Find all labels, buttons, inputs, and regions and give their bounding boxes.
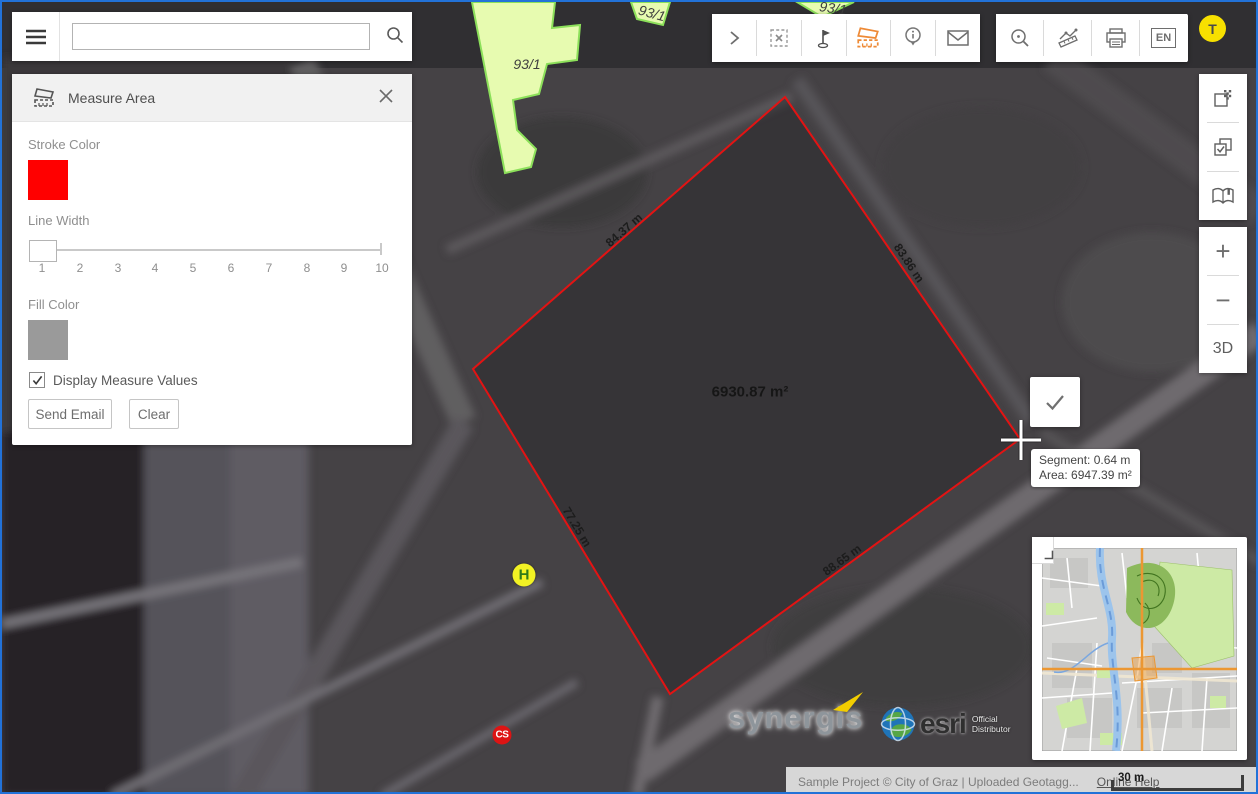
marker-h-label: H: [519, 567, 530, 584]
transparency-button[interactable]: [1199, 74, 1247, 122]
search-input[interactable]: [72, 23, 370, 50]
slider-endcap: [380, 243, 382, 255]
display-measure-values-checkbox[interactable]: Display Measure Values: [29, 372, 198, 388]
zoom-out-button[interactable]: −: [1199, 276, 1247, 324]
search-icon: [385, 25, 405, 45]
area-value-label: 6930.87 m²: [712, 384, 789, 401]
clear-selection-button[interactable]: [757, 14, 801, 62]
slider-tick: 9: [341, 261, 348, 275]
checkbox-check-icon: [32, 375, 43, 386]
scale-bar-line: [1111, 788, 1244, 791]
fill-color-label: Fill Color: [28, 297, 79, 312]
tooltip-segment-value: Segment: 0.64 m: [1039, 453, 1132, 468]
slider-tick: 8: [304, 261, 311, 275]
attribution-text: Sample Project © City of Graz | Uploaded…: [798, 775, 1079, 789]
divider: [59, 12, 60, 61]
flag-marker-button[interactable]: [802, 14, 846, 62]
identify-info-button[interactable]: [891, 14, 935, 62]
layer-selection-button[interactable]: [1199, 123, 1247, 171]
language-label: EN: [1151, 28, 1176, 48]
slider-tick: 3: [115, 261, 122, 275]
close-icon: [378, 88, 394, 104]
envelope-icon: [946, 28, 970, 48]
checkbox-label: Display Measure Values: [53, 373, 198, 388]
checked-squares-icon: [1211, 135, 1235, 159]
legend-button[interactable]: [1199, 172, 1247, 220]
search-button[interactable]: [378, 12, 412, 61]
checkered-squares-icon: [1211, 86, 1235, 110]
measure-area-panel: Measure Area Stroke Color Line Width 1 2…: [12, 74, 412, 445]
status-bar: Sample Project © City of Graz | Uploaded…: [786, 767, 1258, 794]
confirm-measurement-button[interactable]: [1030, 377, 1080, 427]
dashed-box-x-icon: [768, 27, 790, 49]
menu-button[interactable]: [12, 12, 59, 61]
measure-line-button[interactable]: [1044, 14, 1091, 62]
measure-area-icon: [32, 87, 56, 109]
print-button[interactable]: [1092, 14, 1139, 62]
slider-tick: 7: [266, 261, 273, 275]
checkbox-box[interactable]: [29, 372, 45, 388]
flag-pin-icon: [814, 27, 834, 49]
slider-tick: 4: [152, 261, 159, 275]
synergis-logo: synergis: [728, 700, 864, 736]
expand-toolbar-button[interactable]: [712, 14, 756, 62]
chevron-right-icon: [725, 29, 743, 47]
line-width-label: Line Width: [28, 213, 89, 228]
slider-tick: 5: [190, 261, 197, 275]
scale-bar-left-tick: [1111, 780, 1114, 791]
line-width-slider-handle[interactable]: [29, 240, 57, 262]
top-search-bar: [12, 12, 412, 61]
close-panel-button[interactable]: [374, 84, 398, 111]
stroke-color-label: Stroke Color: [28, 137, 100, 152]
marker-cs-label: CS: [496, 730, 509, 741]
panel-header: Measure Area: [12, 74, 412, 122]
magnifier-dot-icon: [1009, 27, 1031, 49]
language-button[interactable]: EN: [1140, 14, 1187, 62]
zoom-toolbar: + − 3D: [1199, 227, 1247, 373]
overview-collapse-button[interactable]: [1032, 537, 1054, 564]
overview-map[interactable]: [1032, 537, 1247, 760]
open-book-icon: [1210, 184, 1236, 208]
measurement-tooltip: Segment: 0.64 m Area: 6947.39 m²: [1031, 449, 1140, 487]
overview-map-image: [1042, 548, 1237, 751]
zoom-select-button[interactable]: [996, 14, 1043, 62]
scale-bar: 30 m: [1111, 774, 1244, 791]
esri-globe-icon: [880, 706, 916, 742]
synergis-leaf-icon: [831, 690, 865, 714]
view-toolbar: EN: [996, 14, 1188, 62]
slider-tick: 6: [228, 261, 235, 275]
user-avatar[interactable]: T: [1199, 15, 1226, 42]
panel-title: Measure Area: [68, 90, 155, 106]
tools-toolbar: [712, 14, 980, 62]
esri-tagline: Official: [972, 714, 1011, 724]
tooltip-area-value: Area: 6947.39 m²: [1039, 468, 1132, 483]
slider-tick: 1: [39, 261, 46, 275]
stroke-color-swatch[interactable]: [28, 160, 68, 200]
checkmark-icon: [1042, 391, 1068, 413]
avatar-initial: T: [1208, 21, 1217, 37]
corner-angle-icon: [1042, 548, 1056, 562]
email-button[interactable]: [936, 14, 980, 62]
hamburger-icon: [24, 27, 48, 47]
esri-tagline: Distributor: [972, 724, 1011, 734]
scale-label: 30 m: [1118, 772, 1144, 784]
map-display-toolbar: [1199, 74, 1247, 220]
parcel-label: 93/1: [513, 56, 540, 72]
fill-color-swatch[interactable]: [28, 320, 68, 360]
toggle-3d-button[interactable]: 3D: [1199, 325, 1247, 373]
measure-area-icon: [855, 26, 881, 50]
app-window: 93/1 93/1 93/1 84.37 m 83.86 m 77.25 m 8…: [0, 0, 1258, 794]
scale-bar-right-tick: [1241, 775, 1244, 791]
esri-wordmark: esri: [920, 708, 966, 740]
send-email-button[interactable]: Send Email: [28, 399, 112, 429]
printer-icon: [1104, 27, 1128, 49]
ruler-polyline-icon: [1056, 27, 1080, 49]
plus-icon: +: [1215, 236, 1230, 267]
map-marker-cs[interactable]: CS: [493, 726, 512, 745]
line-width-slider-track[interactable]: [30, 249, 382, 251]
3d-label: 3D: [1213, 340, 1233, 358]
minus-icon: −: [1215, 285, 1230, 316]
slider-tick: 2: [77, 261, 84, 275]
clear-button[interactable]: Clear: [129, 399, 179, 429]
info-pin-icon: [902, 26, 924, 50]
zoom-in-button[interactable]: +: [1199, 227, 1247, 275]
esri-logo: esri Official Distributor: [880, 706, 1011, 742]
measure-area-tool-button[interactable]: [847, 14, 891, 62]
slider-tick: 10: [375, 261, 388, 275]
map-marker-h[interactable]: H: [513, 564, 536, 587]
